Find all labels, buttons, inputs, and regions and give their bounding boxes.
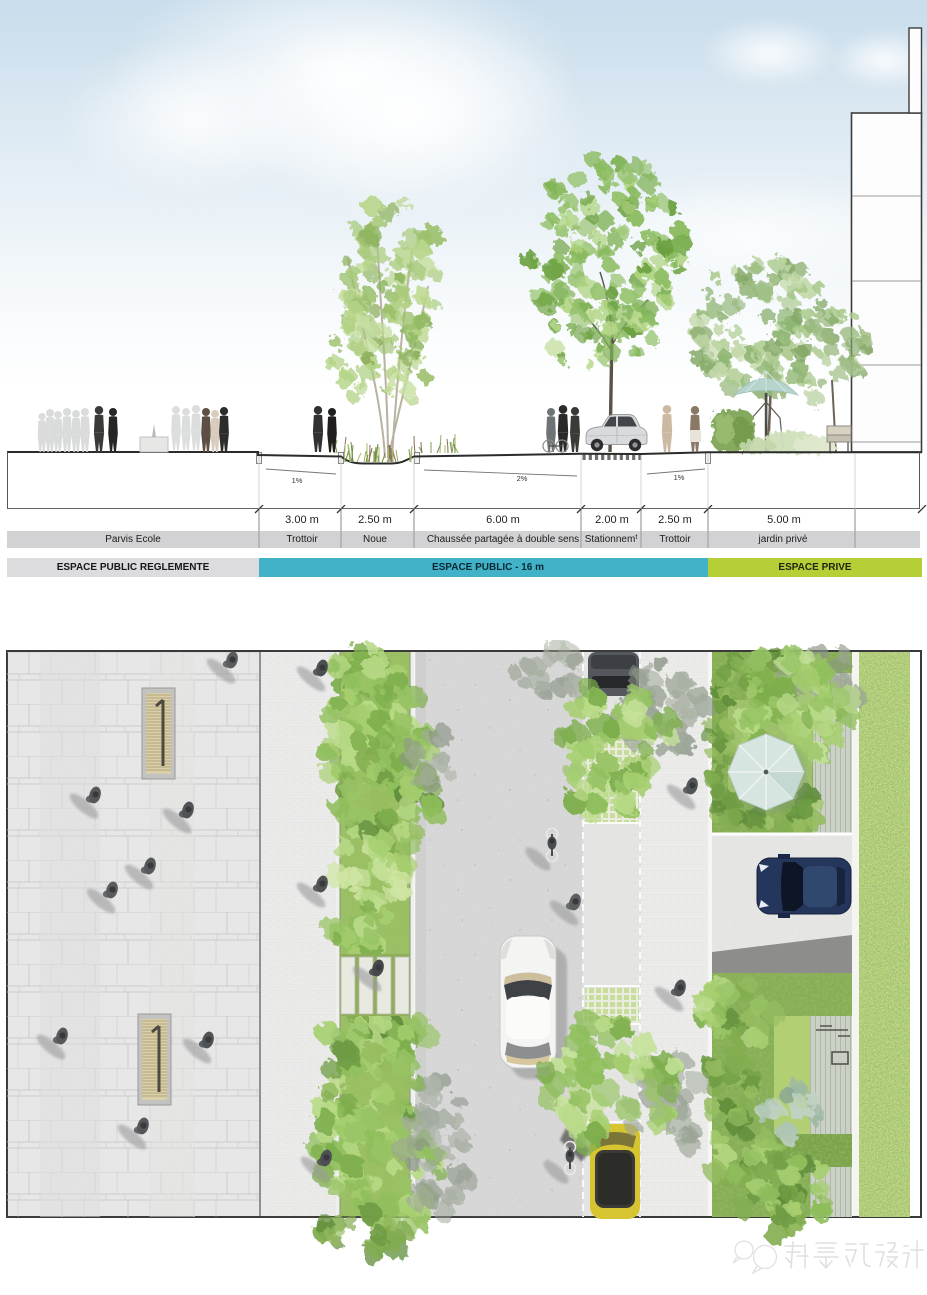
svg-text:2%: 2% bbox=[517, 474, 528, 483]
svg-text:1%: 1% bbox=[292, 476, 303, 485]
svg-text:1%: 1% bbox=[674, 473, 685, 482]
